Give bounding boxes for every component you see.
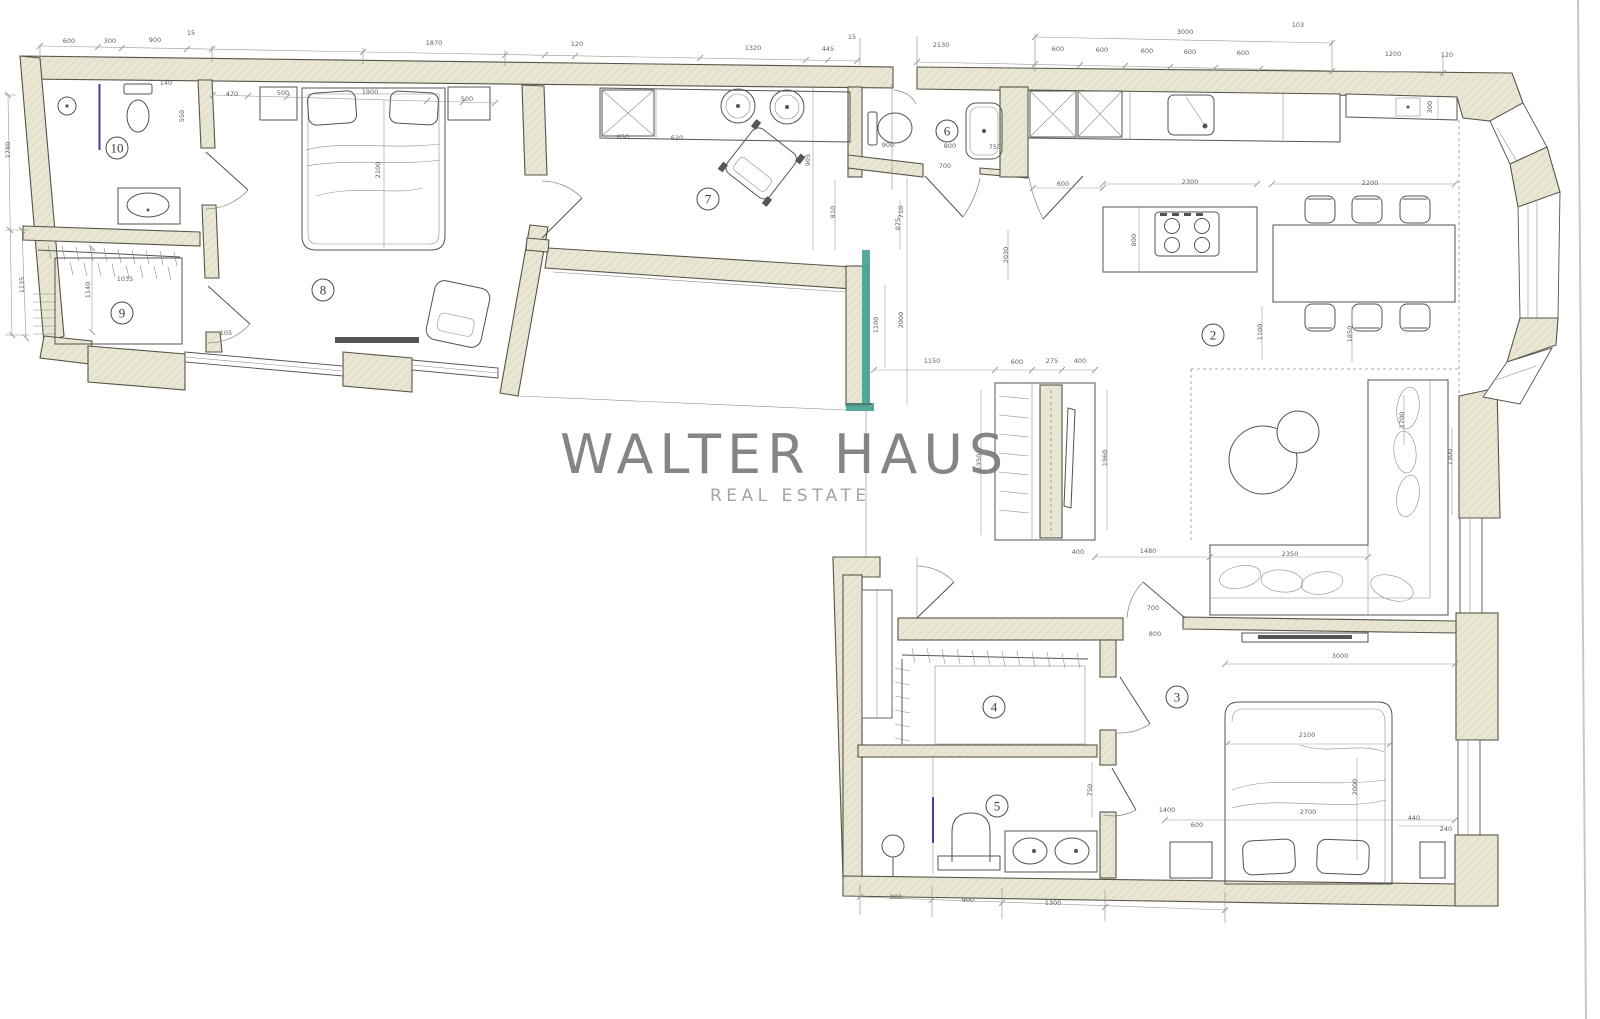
bed-outline — [1225, 702, 1392, 884]
dim-label: 2000 — [897, 312, 905, 329]
dim-label: 500 — [277, 89, 289, 97]
dim-label: 700 — [1147, 604, 1159, 612]
dim-label: 15 — [848, 33, 856, 41]
dim-label: 1135 — [18, 277, 26, 294]
floor-plan-drawing: 6003009001518701201320445152130103300060… — [0, 0, 1600, 1019]
dim-label: 500 — [461, 95, 473, 103]
dim-label: 750 — [1086, 784, 1094, 796]
toilet-tank-icon — [124, 84, 152, 94]
pillow — [307, 90, 357, 125]
room6-bathroom — [868, 103, 1002, 159]
dim-label: 300 — [1426, 101, 1434, 113]
dim-label: 800 — [1149, 630, 1161, 638]
dim-label: 800 — [1130, 234, 1138, 246]
door-room5 — [1112, 768, 1136, 810]
dim-label: 2100 — [374, 162, 382, 179]
dim-label: 1100 — [872, 317, 880, 334]
pillow — [389, 91, 439, 125]
watermark-tagline: REAL ESTATE — [710, 486, 871, 506]
dim-label: 600 — [1191, 821, 1203, 829]
blanket-folds — [1232, 745, 1386, 808]
bench — [335, 337, 419, 343]
tv-icon — [1258, 635, 1352, 639]
dim-label: 750 — [989, 143, 1001, 151]
dim-label: 1400 — [1159, 806, 1176, 814]
dim-label: 905 — [804, 154, 812, 166]
pillow — [1316, 839, 1369, 875]
dim-label: 810 — [829, 206, 837, 218]
dim-label: 1035 — [117, 275, 134, 283]
room7-hall — [600, 88, 850, 207]
kitchen-island — [1103, 207, 1257, 272]
dim-label: 600 — [63, 37, 75, 45]
dim-label: 240 — [1440, 825, 1452, 833]
dim-label: 275 — [1046, 357, 1058, 365]
dim-label: 1480 — [1140, 547, 1157, 555]
room-number: 4 — [991, 700, 998, 715]
dim-label: 2700 — [1300, 808, 1317, 816]
kitchen — [1028, 90, 1457, 331]
dim-label: 800 — [944, 142, 956, 150]
dim-label: 600 — [1011, 358, 1023, 366]
door-room3 — [1143, 582, 1185, 618]
dim-label: 1200 — [1385, 50, 1402, 58]
twin-sink-counter — [1005, 831, 1097, 872]
room9-closet — [33, 245, 182, 344]
room-number: 7 — [705, 192, 712, 207]
room-number: 3 — [1174, 690, 1181, 705]
dim-label: 1870 — [426, 39, 443, 47]
dim-label: 1900 — [362, 88, 379, 96]
dim-label: 600 — [1237, 49, 1249, 57]
zone-dashed-lines — [1191, 120, 1459, 540]
dim-label: 2200 — [1362, 179, 1379, 187]
dim-label: 650 — [617, 133, 629, 141]
dim-label: 2350 — [1282, 550, 1299, 558]
dim-label: 120 — [571, 40, 583, 48]
dim-label: 900 — [149, 36, 161, 44]
dim-label: 1960 — [1101, 450, 1109, 467]
dim-label: 1150 — [924, 357, 941, 365]
dim-label: 620 — [671, 134, 683, 142]
door-room4 — [917, 582, 954, 618]
dim-label: 300 — [104, 37, 116, 45]
dim-label: 875 — [894, 218, 902, 230]
sink-basin-icon — [127, 193, 169, 217]
dim-label: 400 — [1072, 548, 1084, 556]
dim-label: 1300 — [1446, 449, 1454, 466]
dim-label: 3000 — [1177, 28, 1194, 36]
floor-plan-page: 6003009001518701201320445152130103300060… — [0, 0, 1600, 1019]
dim-label: 1850 — [1346, 326, 1354, 343]
fixture-base — [938, 856, 1000, 870]
dim-label: 1700 — [1398, 412, 1406, 429]
dim-label: 1300 — [1045, 899, 1062, 907]
pedestal-sink-icon — [882, 835, 904, 857]
dim-label: 800 — [890, 893, 902, 901]
toilet-icon — [952, 813, 990, 862]
dim-label: 103 — [1292, 21, 1304, 29]
toilet-icon — [878, 113, 912, 143]
blanket-folds — [306, 144, 440, 196]
armchair — [424, 279, 491, 349]
closet-unit — [55, 258, 182, 344]
room3-bedroom — [1170, 633, 1445, 884]
right-window-1 — [1460, 518, 1482, 613]
dim-label: 140 — [160, 79, 172, 87]
armchair — [718, 119, 806, 207]
room-number: 2 — [1210, 328, 1217, 343]
dim-label: 3000 — [1332, 652, 1349, 660]
dim-label: 1100 — [1256, 324, 1264, 341]
room-number: 6 — [944, 124, 951, 139]
dim-label: 2030 — [1002, 247, 1010, 264]
dim-label: 105 — [220, 329, 232, 337]
dim-label: 550 — [178, 110, 186, 122]
room-number: 5 — [994, 799, 1001, 814]
door-corridor — [1120, 677, 1150, 724]
dim-label: 600 — [1141, 47, 1153, 55]
dim-label: 120 — [1441, 51, 1453, 59]
sink-basin-icon — [1055, 838, 1089, 864]
dim-label: 1780 — [4, 142, 12, 159]
dim-label: 15 — [187, 29, 195, 37]
toilet-icon — [127, 100, 149, 132]
sofa-outline — [1210, 380, 1448, 615]
door-room9 — [208, 286, 250, 324]
door-room6 — [925, 176, 963, 217]
nightstand — [448, 87, 490, 120]
dim-label: 1320 — [745, 44, 762, 52]
room-number: 8 — [320, 283, 327, 298]
dim-label: 600 — [1057, 180, 1069, 188]
dim-label: 600 — [1096, 46, 1108, 54]
watermark-brand: WALTER HAUS — [560, 423, 1009, 486]
dim-label: 600 — [1052, 45, 1064, 53]
dim-label: 2000 — [1351, 779, 1359, 796]
dim-label: 900 — [882, 141, 894, 149]
dim-label: 400 — [1074, 357, 1086, 365]
left-wing-windows — [185, 352, 498, 378]
dim-label: 470 — [226, 90, 238, 98]
dim-label: 600 — [1184, 48, 1196, 56]
nightstand — [1420, 842, 1445, 878]
entry-door — [894, 90, 916, 104]
dim-label: 445 — [822, 45, 834, 53]
room8-bedroom — [260, 87, 492, 349]
pillow — [1242, 839, 1296, 876]
room-number: 10 — [111, 141, 124, 156]
dim-label: 440 — [1408, 814, 1420, 822]
room-number: 9 — [119, 306, 126, 321]
stairwell-void-outline — [518, 272, 846, 410]
dim-label: 900 — [962, 896, 974, 904]
page-edge — [1578, 0, 1586, 1019]
toilet-tank-icon — [868, 112, 877, 145]
dim-label: 1140 — [84, 282, 92, 299]
dim-label: 700 — [939, 162, 951, 170]
coffee-table — [1277, 411, 1319, 453]
dim-label: 2130 — [933, 41, 950, 49]
door-room10 — [206, 152, 248, 190]
kitchen-counter — [1028, 90, 1340, 142]
dim-label: 710 — [897, 206, 905, 218]
right-window-2 — [1458, 740, 1480, 835]
dim-label: 2300 — [1182, 178, 1199, 186]
dining-table — [1273, 225, 1455, 302]
sofa-cushion — [1217, 562, 1263, 592]
laundry-counter — [600, 88, 850, 142]
bay-window — [1483, 103, 1560, 404]
dim-label: 2100 — [1299, 731, 1316, 739]
living-area — [995, 380, 1448, 615]
nightstand — [1170, 842, 1212, 878]
sink-basin-icon — [1013, 838, 1047, 864]
door-room8 — [542, 198, 582, 238]
